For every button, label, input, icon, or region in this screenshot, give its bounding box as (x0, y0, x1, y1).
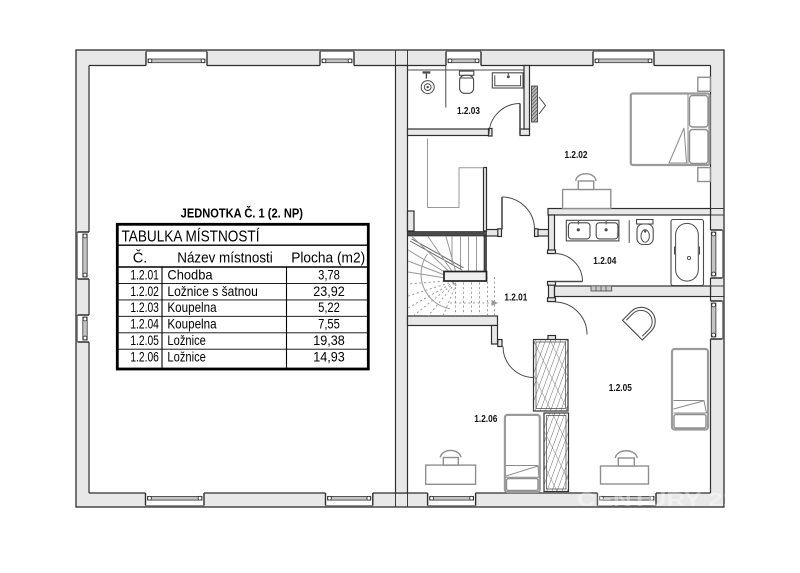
svg-text:1.2.03: 1.2.03 (130, 300, 159, 315)
svg-text:Název místnosti: Název místnosti (177, 250, 273, 266)
svg-text:Koupelna: Koupelna (167, 317, 216, 332)
svg-text:3,78: 3,78 (318, 267, 340, 282)
svg-text:19,38: 19,38 (313, 333, 345, 348)
svg-text:1.2.05: 1.2.05 (609, 383, 632, 394)
svg-text:5,22: 5,22 (318, 300, 340, 315)
svg-text:JEDNOTKA Č. 1 (2. NP): JEDNOTKA Č. 1 (2. NP) (181, 206, 303, 221)
svg-text:14,93: 14,93 (313, 350, 345, 365)
svg-text:Č.: Č. (133, 249, 148, 266)
svg-text:1.2.04: 1.2.04 (593, 256, 616, 267)
svg-text:Ložnice: Ložnice (167, 333, 206, 348)
svg-text:Ložnice s šatnou: Ložnice s šatnou (167, 284, 257, 299)
svg-text:1.2.01: 1.2.01 (130, 267, 159, 282)
svg-text:1.2.02: 1.2.02 (565, 150, 588, 161)
svg-text:Koupelna: Koupelna (167, 300, 216, 315)
svg-text:1.2.01: 1.2.01 (504, 292, 527, 303)
svg-text:1.2.04: 1.2.04 (130, 317, 159, 332)
svg-text:23,92: 23,92 (313, 284, 345, 299)
svg-text:Plocha (m2): Plocha (m2) (291, 250, 365, 266)
svg-text:1.2.05: 1.2.05 (130, 333, 159, 348)
svg-text:1.2.06: 1.2.06 (130, 350, 159, 365)
svg-text:Ložnice: Ložnice (167, 350, 206, 365)
svg-text:CENTURY 21: CENTURY 21 (577, 490, 738, 511)
svg-text:7,55: 7,55 (318, 317, 340, 332)
svg-text:Chodba: Chodba (167, 267, 212, 282)
svg-text:1.2.02: 1.2.02 (130, 284, 159, 299)
svg-text:TABULKA MÍSTNOSTÍ: TABULKA MÍSTNOSTÍ (122, 227, 261, 246)
svg-text:1.2.06: 1.2.06 (474, 414, 497, 425)
svg-text:1.2.03: 1.2.03 (457, 106, 480, 117)
